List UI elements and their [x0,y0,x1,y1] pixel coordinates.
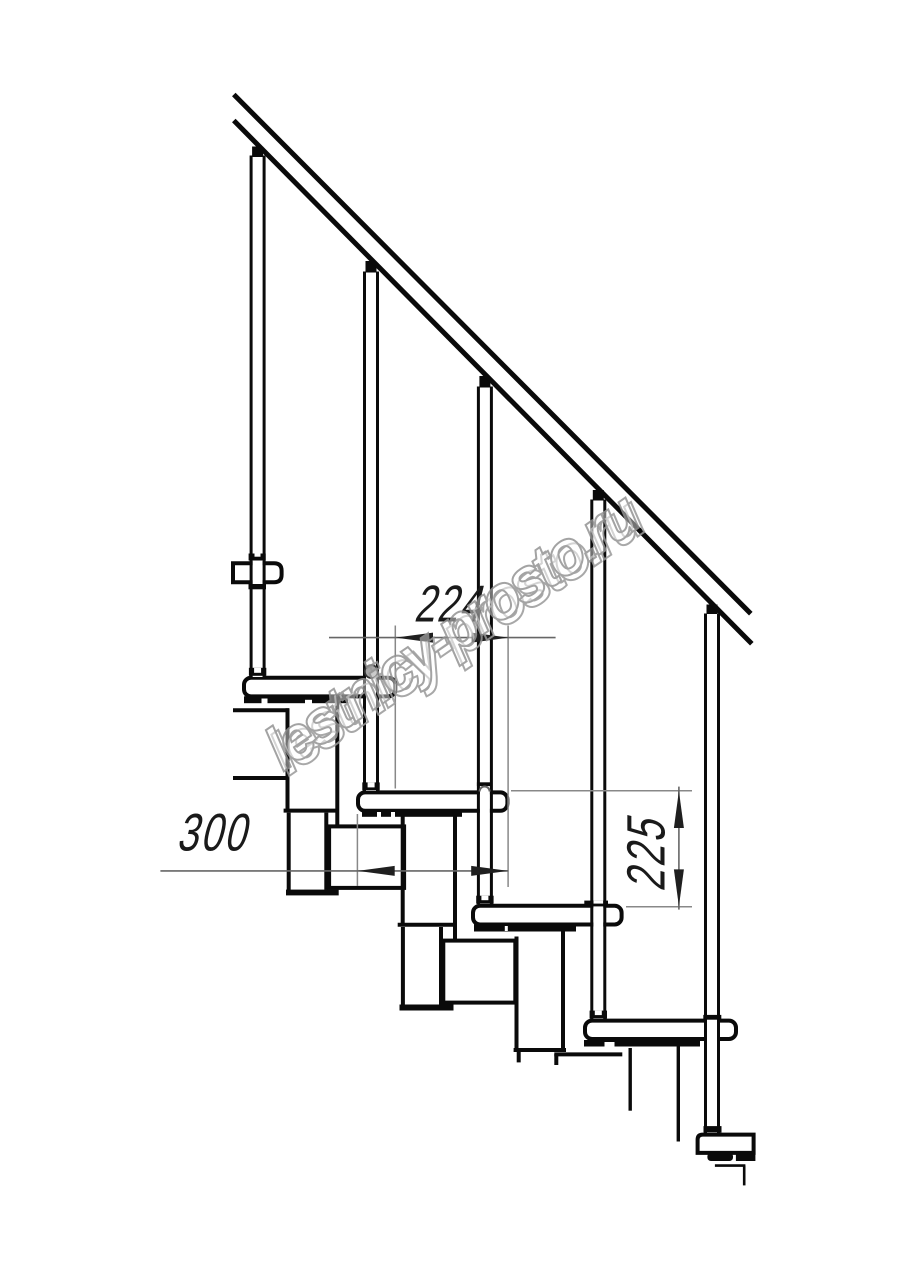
svg-text:225: 225 [617,807,677,895]
svg-text:300: 300 [173,804,259,863]
